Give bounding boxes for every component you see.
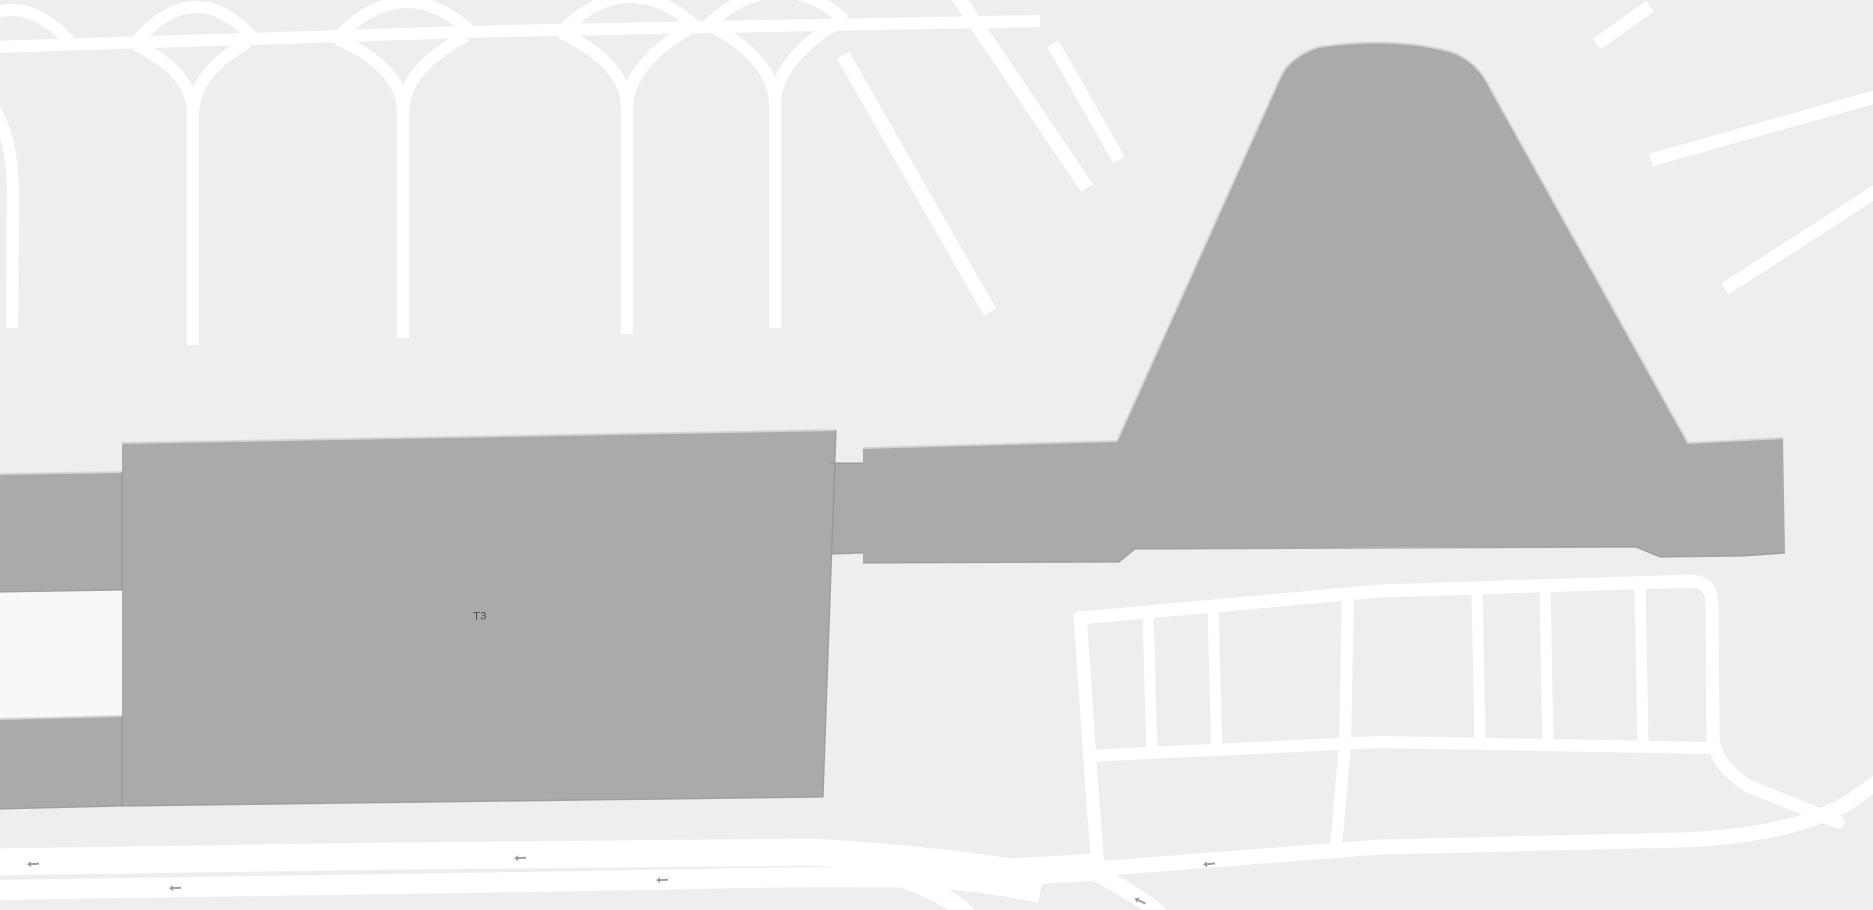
west-pier-a[interactable] xyxy=(0,472,122,592)
map-tile-layer xyxy=(0,0,1873,910)
west-pier-b[interactable] xyxy=(0,716,122,809)
map-canvas[interactable]: T3 xyxy=(0,0,1873,910)
terminal-label[interactable]: T3 xyxy=(473,610,487,622)
apron-patch xyxy=(0,590,122,719)
